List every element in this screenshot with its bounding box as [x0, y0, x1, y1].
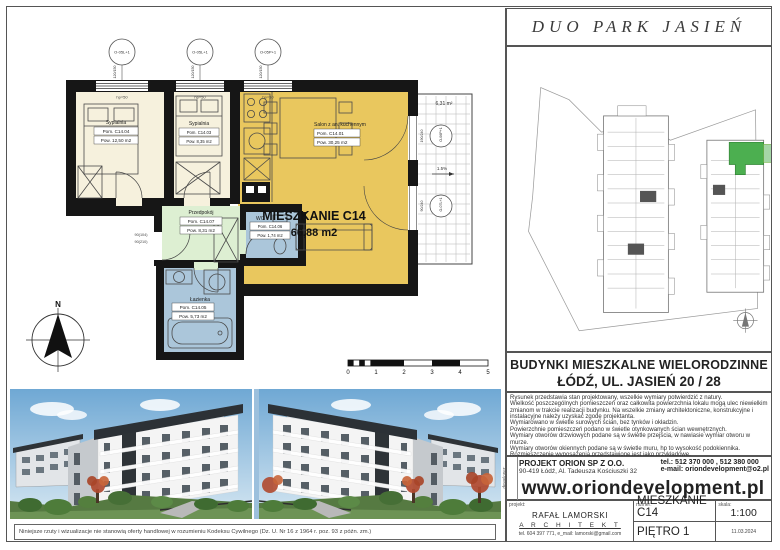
scale-bar: 0 1 2 3 4 5: [346, 360, 490, 376]
scale-5: 5: [486, 370, 490, 376]
windows: O-05L+1 120/150 O-05L+1 120/150 O-05P+1 …: [96, 39, 292, 100]
bedroom1-name: Sypialnia: [106, 120, 127, 126]
window2-hp: hp=50: [194, 95, 206, 100]
project-title: DUO PARK JASIEŃ: [532, 17, 746, 37]
balcony-door2-dim: 90/240: [420, 201, 424, 212]
wc-id: Pom. C14.06: [258, 224, 283, 229]
north-compass-icon: N: [26, 300, 90, 372]
titleblock-number-cell: numer: MIESZKANIE C14 PIĘTRO 1: [634, 501, 716, 541]
site-plan-drawing: [507, 47, 771, 351]
entrance-dim-1: 90(104): [134, 233, 148, 237]
window3-symbol: O-05P+1: [260, 50, 277, 55]
architect-contact: tel. 604 397 771, e_mail: lamorski@gmail…: [507, 531, 633, 537]
balcony: 6,31 m² 1.5% O-06P+1 190/240 O-07L+1 90/…: [416, 94, 472, 264]
apartment-number: MIESZKANIE C14: [634, 501, 715, 522]
drawing-date: 11.03.2024: [716, 522, 771, 541]
scale-0: 0: [346, 370, 350, 376]
note-line: Wymiary otworów drzwiowych podane są w ś…: [510, 433, 768, 446]
notes-box: Rysunek przedstawia stan projektowany, w…: [506, 392, 772, 456]
scale-2: 2: [402, 370, 406, 376]
balcony-door1-symbol: O-06P+1: [439, 127, 443, 141]
window2-symbol: O-05L+1: [192, 50, 208, 55]
titleblock-scale-cell: skala: 1:100 11.03.2024: [716, 501, 771, 541]
drawing-sheet: 6,31 m² 1.5% O-06P+1 190/240 O-07L+1 90/…: [0, 0, 780, 550]
balcony-door2-symbol: O-07L+1: [439, 197, 443, 211]
wc-area: Pow. 1,74 m2: [257, 233, 283, 238]
scale-value: 1:100: [716, 501, 771, 522]
company-box: deweloper: PROJEKT ORION SP Z O.O. 90-41…: [506, 456, 772, 500]
balcony-door1-dim: 190/240: [420, 130, 424, 143]
company-address: 90-419 Łódź, Al. Tadeusza Kościuszki 32: [519, 468, 637, 475]
company-phone: tel.: 512 370 000 , 512 380 000: [661, 459, 769, 466]
company-side-label: deweloper:: [502, 466, 507, 488]
building-photo-left: [10, 389, 252, 519]
company-email: e-mail: oriondevelopment@o2.pl: [661, 466, 769, 473]
title-panel: DUO PARK JASIEŃ: [505, 8, 771, 542]
header-line2: ŁÓDŹ, UL. JASIEŃ 20 / 28: [507, 374, 771, 389]
architect-name: RAFAŁ LAMORSKI: [507, 511, 633, 520]
site-compass-icon: [733, 308, 757, 332]
disclaimer-text: Niniejsze rzuty i wizualizacje nie stano…: [19, 529, 371, 535]
scale-4: 4: [458, 370, 462, 376]
floor-plan-drawing: 6,31 m² 1.5% O-06P+1 190/240 O-07L+1 90/…: [8, 8, 503, 388]
balcony-slope-label: 1.5%: [437, 166, 447, 171]
bedroom2-id: Pom. C14.03: [187, 130, 212, 135]
salon-id: Pom. C14.01: [317, 131, 344, 136]
architect-title: A R C H I T E K T: [507, 522, 633, 529]
scale-3: 3: [430, 370, 434, 376]
legal-disclaimer: Niniejsze rzuty i wizualizacje nie stano…: [14, 524, 496, 540]
window2-dim: 120/150: [191, 66, 195, 79]
site-plan-box: [506, 46, 772, 352]
window1-symbol: O-05L+1: [114, 50, 130, 55]
company-name: PROJEKT ORION SP Z O.O.: [519, 459, 637, 468]
drawing-header-box: BUDYNKI MIESZKALNE WIELORODZINNE ŁÓDŹ, U…: [506, 352, 772, 392]
note-line: Wielkość poszczególnych pomieszczeń oraz…: [510, 401, 768, 420]
apartment-title: MIESZKANIE C14: [262, 209, 366, 223]
titleblock-table: projekt: RAFAŁ LAMORSKI A R C H I T E K …: [506, 500, 772, 542]
salon-area: Pow. 30,25 m2: [317, 140, 348, 145]
apartment-area: 66,88 m2: [291, 227, 337, 239]
bath-area: Pow. 5,73 m2: [179, 314, 207, 319]
window1-hp: hp=50: [116, 95, 128, 100]
bedroom1-id: Pom. C14.04: [103, 129, 130, 134]
bedroom2-area: Pow. 8,35 m2: [186, 139, 212, 144]
balcony-area-label: 6,31 m²: [436, 101, 453, 107]
hall-area: Pow. 8,31 m2: [187, 228, 215, 233]
site-building-left: [597, 106, 674, 313]
window3-dim: 120/150: [259, 66, 263, 79]
header-line1: BUDYNKI MIESZKALNE WIELORODZINNE: [507, 358, 771, 372]
salon-name: Salon z an. kuchennym: [314, 122, 366, 128]
window1-dim: 120/150: [113, 66, 117, 79]
compass-n-label: N: [55, 300, 61, 309]
bedroom2-name: Sypialnia: [189, 121, 210, 127]
bath-id: Pom. C14.05: [180, 305, 207, 310]
titleblock-project-cell: projekt: RAFAŁ LAMORSKI A R C H I T E K …: [507, 501, 634, 541]
projekt-label: projekt:: [509, 502, 525, 508]
hall-name: Przedpokój: [188, 210, 213, 216]
scale-1: 1: [374, 370, 378, 376]
project-title-box: DUO PARK JASIEŃ: [506, 8, 772, 46]
bath-name: Łazienka: [190, 297, 210, 303]
site-building-right: [701, 140, 771, 292]
building-photo-right: [254, 389, 501, 519]
bedroom1-area: Pow. 12,50 m2: [101, 138, 132, 143]
floor-label: PIĘTRO 1: [634, 522, 715, 541]
entrance-dim-2: 90(210): [134, 240, 148, 244]
floor-plan: 6,31 m² 1.5% O-06P+1 190/240 O-07L+1 90/…: [8, 8, 503, 388]
hall-id: Pom. C14.07: [188, 219, 215, 224]
